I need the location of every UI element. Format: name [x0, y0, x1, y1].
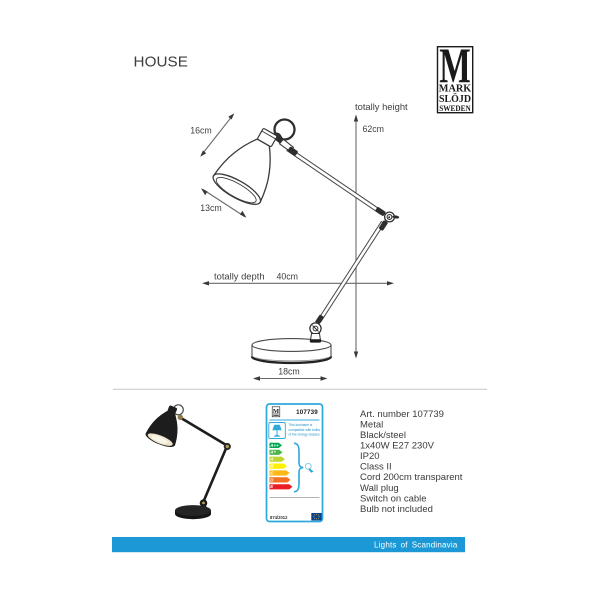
svg-text:16cm: 16cm: [190, 126, 212, 136]
svg-text:A+: A+: [269, 450, 276, 455]
svg-text:IP20: IP20: [360, 451, 380, 462]
svg-text:Art. number 107739: Art. number 107739: [360, 409, 444, 420]
svg-text:13cm: 13cm: [200, 203, 222, 213]
svg-text:SWEDEN: SWEDEN: [439, 103, 471, 113]
svg-text:This luminaire is: This luminaire is: [289, 423, 313, 427]
svg-text:1x40W E27 230V: 1x40W E27 230V: [360, 441, 435, 452]
svg-text:Lights of Scandinavia: Lights of Scandinavia: [374, 541, 458, 550]
svg-text:A++: A++: [269, 443, 279, 448]
svg-text:Wall plug: Wall plug: [360, 483, 399, 494]
svg-text:A: A: [269, 457, 273, 462]
svg-text:Switch on cable: Switch on cable: [360, 493, 427, 504]
svg-text:compatible with bulbs: compatible with bulbs: [289, 428, 321, 432]
svg-text:of the energy classes: of the energy classes: [289, 432, 321, 436]
svg-text:874/2012: 874/2012: [270, 515, 288, 520]
svg-text:18cm: 18cm: [278, 367, 300, 377]
svg-text:Cord 200cm transparent: Cord 200cm transparent: [360, 472, 463, 483]
svg-text:Class II: Class II: [360, 462, 392, 473]
svg-text:107739: 107739: [296, 409, 318, 416]
svg-text:totally depth: totally depth: [214, 271, 265, 282]
svg-text:Metal: Metal: [360, 420, 383, 431]
svg-text:Black/steel: Black/steel: [360, 430, 406, 441]
svg-text:62cm: 62cm: [363, 124, 385, 134]
svg-text:HOUSE: HOUSE: [134, 54, 189, 71]
svg-text:totally height: totally height: [355, 101, 408, 112]
svg-text:Bulb not included: Bulb not included: [360, 504, 433, 515]
svg-text:40cm: 40cm: [277, 271, 299, 281]
